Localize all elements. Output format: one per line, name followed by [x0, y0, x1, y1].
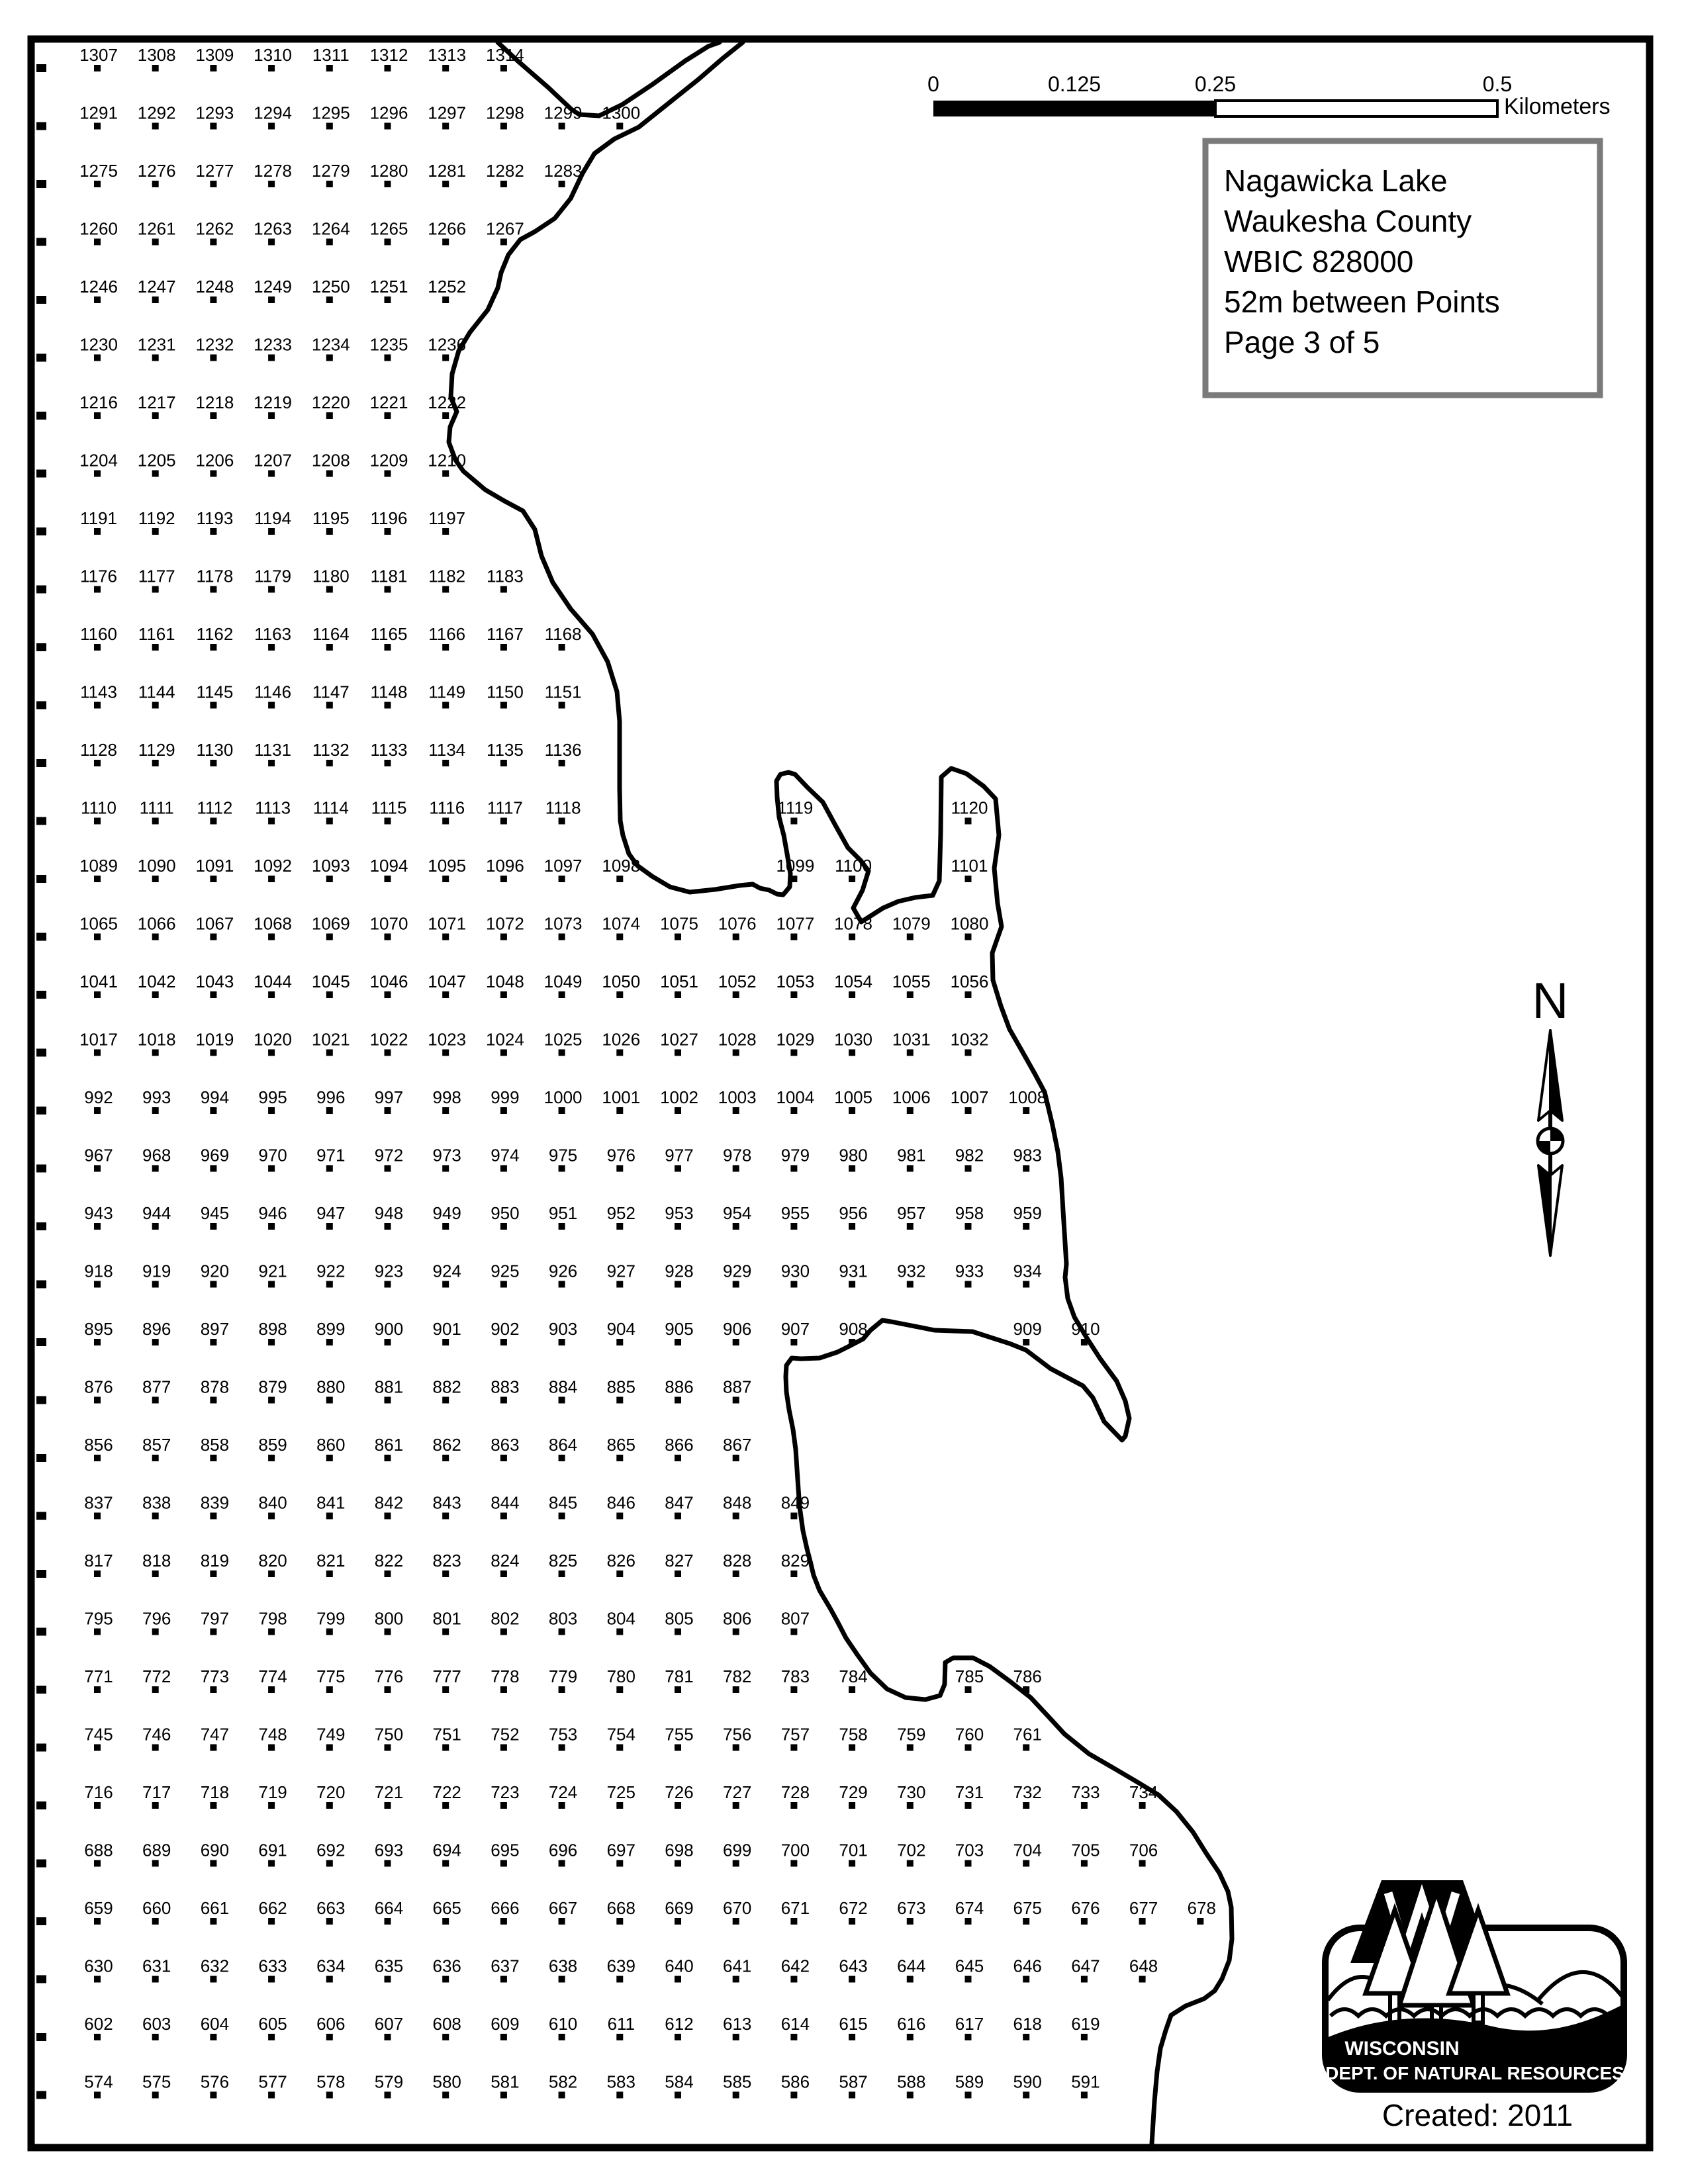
grid-point-label: 1160 — [80, 624, 117, 644]
grid-point-dot — [790, 1339, 797, 1345]
grid-point-label: 1260 — [79, 219, 118, 239]
grid-point-dot — [385, 1745, 391, 1751]
logo-dept-text: DEPT. OF NATURAL RESOURCES — [1325, 2063, 1624, 2083]
grid-point-label: 1004 — [776, 1087, 814, 1107]
grid-point-label: 919 — [142, 1261, 171, 1281]
grid-point-label: 898 — [258, 1319, 287, 1339]
grid-point-dot — [559, 123, 565, 130]
grid-point-dot — [152, 181, 159, 187]
grid-point-dot — [268, 123, 275, 130]
grid-point-label: 908 — [839, 1319, 867, 1339]
grid-point-dot — [326, 181, 333, 187]
grid-point-label: 756 — [723, 1725, 751, 1745]
grid-point-label: 1313 — [428, 45, 466, 65]
grid-point-dot — [152, 1165, 159, 1172]
grid-point-dot — [442, 1165, 449, 1172]
left-edge-tick — [36, 1454, 46, 1462]
grid-point-label: 1073 — [544, 914, 583, 934]
grid-point-label: 729 — [839, 1782, 867, 1802]
grid-point-dot — [965, 1281, 972, 1288]
grid-point-dot — [1023, 1107, 1029, 1114]
grid-point-label: 1293 — [195, 103, 234, 123]
grid-point-label: 746 — [142, 1725, 171, 1745]
grid-point-label: 760 — [955, 1725, 984, 1745]
grid-point-dot — [1081, 1918, 1088, 1925]
grid-point-label: 733 — [1071, 1782, 1100, 1802]
grid-point-dot — [210, 1976, 216, 1983]
grid-point-dot — [849, 1860, 855, 1867]
grid-point-label: 993 — [142, 1087, 171, 1107]
grid-point-label: 1112 — [197, 798, 232, 818]
grid-point-dot — [268, 702, 275, 709]
grid-point-dot — [152, 1513, 159, 1520]
grid-point-dot — [675, 1860, 681, 1867]
grid-point-label: 1113 — [255, 798, 291, 818]
grid-point-dot — [210, 296, 216, 303]
grid-point-label: 1056 — [951, 972, 989, 991]
grid-point-label: 1282 — [486, 161, 524, 181]
grid-point-label: 846 — [607, 1493, 635, 1513]
grid-point-dot — [675, 934, 681, 940]
grid-point-label: 1278 — [254, 161, 292, 181]
grid-point-dot — [268, 934, 275, 940]
grid-point-dot — [385, 1976, 391, 1983]
grid-point-label: 876 — [84, 1377, 113, 1397]
grid-point-dot — [1023, 1802, 1029, 1809]
grid-point-dot — [733, 1339, 739, 1345]
left-edge-tick — [36, 1222, 46, 1230]
grid-point-label: 644 — [897, 1956, 925, 1976]
grid-point-label: 847 — [665, 1493, 693, 1513]
grid-point-dot — [326, 1860, 333, 1867]
grid-point-label: 785 — [955, 1666, 984, 1686]
grid-point-label: 1028 — [718, 1030, 757, 1050]
grid-point-dot — [326, 1686, 333, 1693]
grid-point-dot — [268, 65, 275, 71]
grid-point-dot — [326, 760, 333, 766]
grid-point-dot — [500, 934, 507, 940]
left-edge-tick — [36, 1917, 46, 1925]
grid-point-dot — [559, 181, 565, 187]
grid-point-dot — [210, 818, 216, 825]
grid-point-label: 774 — [258, 1666, 287, 1686]
grid-point-label: 997 — [375, 1087, 403, 1107]
grid-point-label: 719 — [258, 1782, 287, 1802]
scale-unit-label: Kilometers — [1504, 94, 1611, 119]
grid-point-label: 1205 — [138, 451, 176, 471]
grid-point-dot — [1023, 1165, 1029, 1172]
grid-point-label: 1019 — [195, 1030, 234, 1050]
left-edge-tick — [36, 1338, 46, 1346]
north-arrow-lower-right — [1550, 1165, 1562, 1255]
grid-point-label: 648 — [1129, 1956, 1158, 1976]
grid-point-dot — [442, 1629, 449, 1635]
grid-point-label: 670 — [723, 1898, 751, 1918]
grid-point-dot — [210, 1745, 216, 1751]
grid-point-label: 1297 — [428, 103, 466, 123]
grid-point-dot — [790, 1860, 797, 1867]
grid-point-label: 969 — [201, 1146, 229, 1165]
left-edge-tick — [36, 991, 46, 999]
grid-point-label: 1046 — [370, 972, 408, 991]
grid-point-dot — [152, 1976, 159, 1983]
grid-point-dot — [94, 991, 101, 998]
grid-point-label: 931 — [839, 1261, 867, 1281]
grid-point-dot — [152, 239, 159, 246]
grid-point-label: 822 — [375, 1551, 403, 1570]
grid-point-dot — [326, 528, 333, 535]
grid-point-dot — [152, 1339, 159, 1345]
grid-point-label: 631 — [142, 1956, 171, 1976]
grid-point-dot — [1023, 1745, 1029, 1751]
grid-point-label: 1077 — [776, 914, 814, 934]
grid-point-label: 884 — [549, 1377, 577, 1397]
grid-point-dot — [326, 991, 333, 998]
scale-bar: 0 0.125 0.25 0.5 Kilometers — [927, 72, 1611, 119]
grid-point-dot — [500, 2092, 507, 2099]
grid-point-label: 1194 — [254, 508, 291, 528]
grid-point-dot — [385, 1339, 391, 1345]
grid-point-label: 1074 — [602, 914, 640, 934]
grid-point-dot — [907, 934, 914, 940]
grid-point-label: 1023 — [428, 1030, 466, 1050]
grid-point-label: 1191 — [80, 508, 117, 528]
grid-point-dot — [94, 2034, 101, 2040]
grid-point-label: 877 — [142, 1377, 171, 1397]
grid-point-label: 1167 — [487, 624, 524, 644]
grid-point-dot — [442, 2092, 449, 2099]
grid-point-dot — [268, 760, 275, 766]
grid-point-label: 1128 — [80, 740, 117, 760]
grid-point-label: 586 — [781, 2072, 810, 2092]
grid-point-dot — [152, 1223, 159, 1230]
grid-point-dot — [326, 1976, 333, 1983]
grid-point-dot — [210, 586, 216, 593]
grid-point-label: 617 — [955, 2014, 984, 2034]
grid-point-label: 778 — [491, 1666, 519, 1686]
north-arrow-ball-ne-quadrant — [1550, 1128, 1563, 1141]
grid-point-dot — [94, 1050, 101, 1056]
grid-point-dot — [94, 471, 101, 477]
grid-point-dot — [442, 991, 449, 998]
grid-point-dot — [559, 1570, 565, 1577]
grid-point-label: 806 — [723, 1609, 751, 1629]
scale-bar-open-segment — [1215, 101, 1497, 116]
grid-point-label: 721 — [375, 1782, 403, 1802]
grid-point-dot — [500, 123, 507, 130]
grid-point-dot — [385, 1165, 391, 1172]
grid-point-dot — [1023, 1976, 1029, 1983]
grid-point-dot — [268, 181, 275, 187]
grid-point-label: 587 — [839, 2072, 867, 2092]
grid-point-dot — [442, 296, 449, 303]
grid-point-dot — [152, 2092, 159, 2099]
grid-point-dot — [442, 1339, 449, 1345]
grid-point-label: 1027 — [660, 1030, 698, 1050]
grid-point-label: 718 — [201, 1782, 229, 1802]
grid-point-dot — [268, 1860, 275, 1867]
grid-point-dot — [326, 239, 333, 246]
grid-point-dot — [210, 2034, 216, 2040]
grid-point-label: 773 — [201, 1666, 229, 1686]
grid-point-label: 590 — [1013, 2072, 1042, 2092]
grid-point-label: 614 — [781, 2014, 810, 2034]
grid-point-dot — [326, 1513, 333, 1520]
grid-point-label: 1071 — [428, 914, 466, 934]
grid-point-dot — [152, 1455, 159, 1461]
grid-point-dot — [210, 1050, 216, 1056]
grid-point-dot — [616, 991, 623, 998]
grid-point-label: 867 — [723, 1435, 751, 1455]
grid-point-dot — [790, 2092, 797, 2099]
grid-point-dot — [94, 644, 101, 651]
grid-point-dot — [965, 1050, 972, 1056]
grid-point-dot — [907, 1976, 914, 1983]
grid-point-label: 840 — [258, 1493, 287, 1513]
grid-point-label: 753 — [549, 1725, 577, 1745]
grid-point-label: 1080 — [951, 914, 989, 934]
grid-point-dot — [849, 934, 855, 940]
grid-point-dot — [616, 1918, 623, 1925]
grid-point-label: 957 — [897, 1203, 925, 1223]
grid-point-label: 825 — [549, 1551, 577, 1570]
grid-point-dot — [326, 471, 333, 477]
grid-point-dot — [326, 1050, 333, 1056]
grid-point-dot — [442, 760, 449, 766]
grid-point-dot — [94, 1165, 101, 1172]
grid-point-label: 948 — [375, 1203, 403, 1223]
grid-point-dot — [94, 1339, 101, 1345]
grid-point-dot — [94, 1223, 101, 1230]
grid-point-label: 972 — [375, 1146, 403, 1165]
grid-point-label: 1209 — [370, 451, 408, 471]
grid-point-dot — [94, 702, 101, 709]
left-edge-tick — [36, 1801, 46, 1809]
grid-point-dot — [152, 528, 159, 535]
grid-point-label: 1178 — [196, 567, 233, 586]
grid-point-dot — [210, 1107, 216, 1114]
grid-point-label: 1118 — [545, 798, 581, 818]
grid-point-label: 1065 — [79, 914, 118, 934]
grid-point-dot — [559, 1165, 565, 1172]
grid-point-label: 819 — [201, 1551, 229, 1570]
grid-point-dot — [94, 1745, 101, 1751]
grid-point-label: 638 — [549, 1956, 577, 1976]
grid-point-dot — [268, 412, 275, 419]
grid-point-label: 663 — [316, 1898, 345, 1918]
grid-point-dot — [326, 586, 333, 593]
grid-point-label: 1309 — [195, 45, 234, 65]
grid-point-dot — [965, 2092, 972, 2099]
grid-point-label: 607 — [375, 2014, 403, 2034]
grid-point-dot — [675, 1918, 681, 1925]
grid-point-label: 955 — [781, 1203, 810, 1223]
grid-point-dot — [268, 1745, 275, 1751]
grid-point-dot — [790, 1107, 797, 1114]
grid-point-dot — [559, 1050, 565, 1056]
grid-point-dot — [559, 1745, 565, 1751]
grid-point-label: 781 — [665, 1666, 693, 1686]
grid-point-dot — [616, 1860, 623, 1867]
grid-point-dot — [500, 991, 507, 998]
grid-point-dot — [616, 1281, 623, 1288]
grid-point-label: 1002 — [660, 1087, 698, 1107]
left-edge-tick — [36, 759, 46, 767]
grid-point-dot — [559, 934, 565, 940]
grid-point-label: 902 — [491, 1319, 519, 1339]
grid-point-label: 958 — [955, 1203, 984, 1223]
grid-point-label: 1029 — [776, 1030, 814, 1050]
grid-point-label: 1197 — [428, 508, 465, 528]
grid-point-label: 848 — [723, 1493, 751, 1513]
north-arrow-upper-left — [1538, 1030, 1550, 1120]
grid-point-dot — [94, 296, 101, 303]
grid-point-label: 901 — [433, 1319, 461, 1339]
grid-point-label: 1136 — [545, 740, 582, 760]
grid-point-label: 1068 — [254, 914, 292, 934]
grid-point-label: 800 — [375, 1609, 403, 1629]
grid-point-dot — [326, 1570, 333, 1577]
grid-point-label: 1119 — [777, 798, 813, 818]
grid-point-label: 973 — [433, 1146, 461, 1165]
grid-point-dot — [268, 239, 275, 246]
grid-point-label: 1145 — [196, 682, 233, 702]
grid-point-label: 1208 — [312, 451, 350, 471]
grid-point-label: 994 — [201, 1087, 229, 1107]
grid-point-label: 1018 — [138, 1030, 176, 1050]
grid-point-dot — [152, 1745, 159, 1751]
grid-point-dot — [616, 2092, 623, 2099]
grid-point-dot — [849, 1918, 855, 1925]
grid-point-dot — [559, 1513, 565, 1520]
grid-point-label: 589 — [955, 2072, 984, 2092]
grid-point-label: 747 — [201, 1725, 229, 1745]
grid-point-label: 1041 — [79, 972, 118, 991]
title-county: Waukesha County — [1224, 204, 1472, 238]
grid-point-label: 698 — [665, 1841, 693, 1860]
grid-point-dot — [500, 644, 507, 651]
grid-point-label: 758 — [839, 1725, 867, 1745]
grid-point-label: 820 — [258, 1551, 287, 1570]
grid-point-dot — [152, 991, 159, 998]
grid-point-label: 1075 — [660, 914, 698, 934]
grid-point-dot — [675, 1223, 681, 1230]
grid-point-label: 967 — [84, 1146, 113, 1165]
grid-point-dot — [326, 702, 333, 709]
grid-point-dot — [907, 2092, 914, 2099]
grid-point-dot — [733, 1513, 739, 1520]
grid-point-dot — [210, 1397, 216, 1404]
grid-point-label: 640 — [665, 1956, 693, 1976]
grid-point-dot — [268, 296, 275, 303]
grid-point-dot — [616, 1629, 623, 1635]
grid-point-dot — [1139, 1802, 1146, 1809]
grid-point-label: 1210 — [428, 451, 466, 471]
grid-point-dot — [326, 1165, 333, 1172]
grid-point-dot — [442, 1281, 449, 1288]
grid-point-label: 1161 — [138, 624, 175, 644]
grid-point-label: 907 — [781, 1319, 810, 1339]
grid-point-label: 1248 — [195, 277, 234, 296]
grid-point-dot — [326, 355, 333, 361]
grid-point-label: 1283 — [544, 161, 583, 181]
grid-point-dot — [559, 1281, 565, 1288]
grid-point-label: 1151 — [545, 682, 582, 702]
grid-point-dot — [268, 1397, 275, 1404]
grid-point-dot — [616, 1802, 623, 1809]
grid-point-dot — [849, 1976, 855, 1983]
grid-point-dot — [907, 1860, 914, 1867]
grid-point-dot — [210, 934, 216, 940]
grid-point-label: 674 — [955, 1898, 984, 1918]
left-edge-tick — [36, 933, 46, 941]
grid-point-label: 1163 — [254, 624, 291, 644]
grid-point-dot — [500, 1745, 507, 1751]
grid-point-dot — [210, 1918, 216, 1925]
grid-point-label: 1195 — [312, 508, 350, 528]
grid-point-label: 920 — [201, 1261, 229, 1281]
logo-wisconsin-text: WISCONSIN — [1344, 2038, 1459, 2060]
grid-point-dot — [326, 876, 333, 882]
grid-point-label: 881 — [375, 1377, 403, 1397]
grid-point-label: 1007 — [951, 1087, 989, 1107]
grid-point-label: 968 — [142, 1146, 171, 1165]
grid-point-label: 882 — [433, 1377, 461, 1397]
grid-point-label: 582 — [549, 2072, 577, 2092]
grid-point-label: 1053 — [776, 972, 814, 991]
grid-point-dot — [385, 1629, 391, 1635]
grid-point-label: 588 — [897, 2072, 925, 2092]
grid-point-label: 861 — [375, 1435, 403, 1455]
grid-point-dot — [616, 1223, 623, 1230]
grid-point-label: 609 — [491, 2014, 519, 2034]
grid-point-dot — [268, 355, 275, 361]
grid-point-dot — [1023, 1686, 1029, 1693]
grid-point-dot — [94, 760, 101, 766]
grid-point-dot — [500, 1455, 507, 1461]
left-edge-tick — [36, 1628, 46, 1636]
grid-point-label: 1307 — [79, 45, 118, 65]
grid-point-dot — [210, 1339, 216, 1345]
grid-point-label: 795 — [84, 1609, 113, 1629]
grid-point-dot — [152, 1107, 159, 1114]
grid-point-label: 866 — [665, 1435, 693, 1455]
grid-point-label: 952 — [607, 1203, 635, 1223]
grid-point-label: 1300 — [602, 103, 640, 123]
grid-point-dot — [442, 1686, 449, 1693]
grid-point-label: 749 — [316, 1725, 345, 1745]
grid-point-dot — [733, 2092, 739, 2099]
grid-point-dot — [559, 1223, 565, 1230]
grid-point-dot — [268, 1281, 275, 1288]
grid-point-dot — [210, 1281, 216, 1288]
grid-point-label: 1093 — [312, 856, 350, 876]
grid-point-dot — [675, 1686, 681, 1693]
grid-point-label: 1054 — [834, 972, 872, 991]
lake-map-canvas: 1307130813091310131113121313131412911292… — [0, 0, 1688, 2184]
grid-point-dot — [326, 1455, 333, 1461]
grid-point-dot — [1023, 1918, 1029, 1925]
grid-point-label: 970 — [258, 1146, 287, 1165]
grid-point-label: 1045 — [312, 972, 350, 991]
grid-point-dot — [790, 1629, 797, 1635]
grid-point-label: 903 — [549, 1319, 577, 1339]
grid-point-dot — [675, 1339, 681, 1345]
grid-point-dot — [94, 876, 101, 882]
grid-point-dot — [442, 1455, 449, 1461]
grid-point-label: 818 — [142, 1551, 171, 1570]
grid-point-dot — [1023, 2092, 1029, 2099]
